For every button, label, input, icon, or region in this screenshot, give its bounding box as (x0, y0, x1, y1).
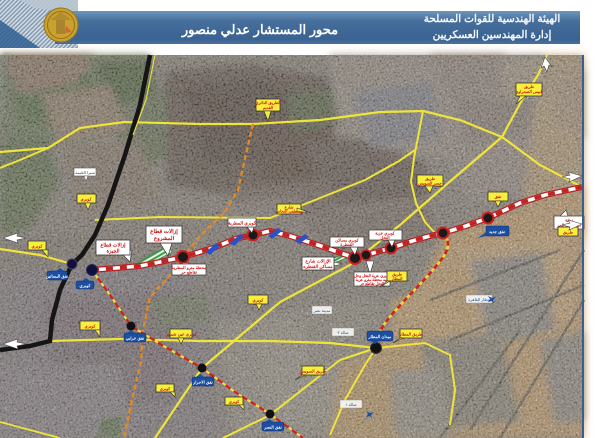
svg-text:شبرا الخيمة: شبرا الخيمة (75, 170, 95, 175)
svg-text:الهيئة الهندسية للقوات المسلحة: الهيئة الهندسية للقوات المسلحة (424, 13, 561, 25)
svg-text:مطار القاهرة: مطار القاهرة (468, 297, 490, 302)
svg-text:محور المستشار عدلي منصور: محور المستشار عدلي منصور (181, 22, 338, 38)
svg-text:صالة ٣: صالة ٣ (337, 330, 349, 335)
svg-text:مدينة نصر: مدينة نصر (313, 308, 331, 313)
svg-text:صالة ١: صالة ١ (345, 402, 357, 407)
svg-text:إدارة المهندسين العسكريين: إدارة المهندسين العسكريين (433, 29, 552, 42)
svg-text:النخل: النخل (380, 235, 389, 240)
svg-text:إزالات قطاع: إزالات قطاع (150, 228, 178, 235)
svg-text:الجيزة: الجيزة (106, 249, 120, 255)
svg-text:المشروع: المشروع (154, 235, 175, 242)
